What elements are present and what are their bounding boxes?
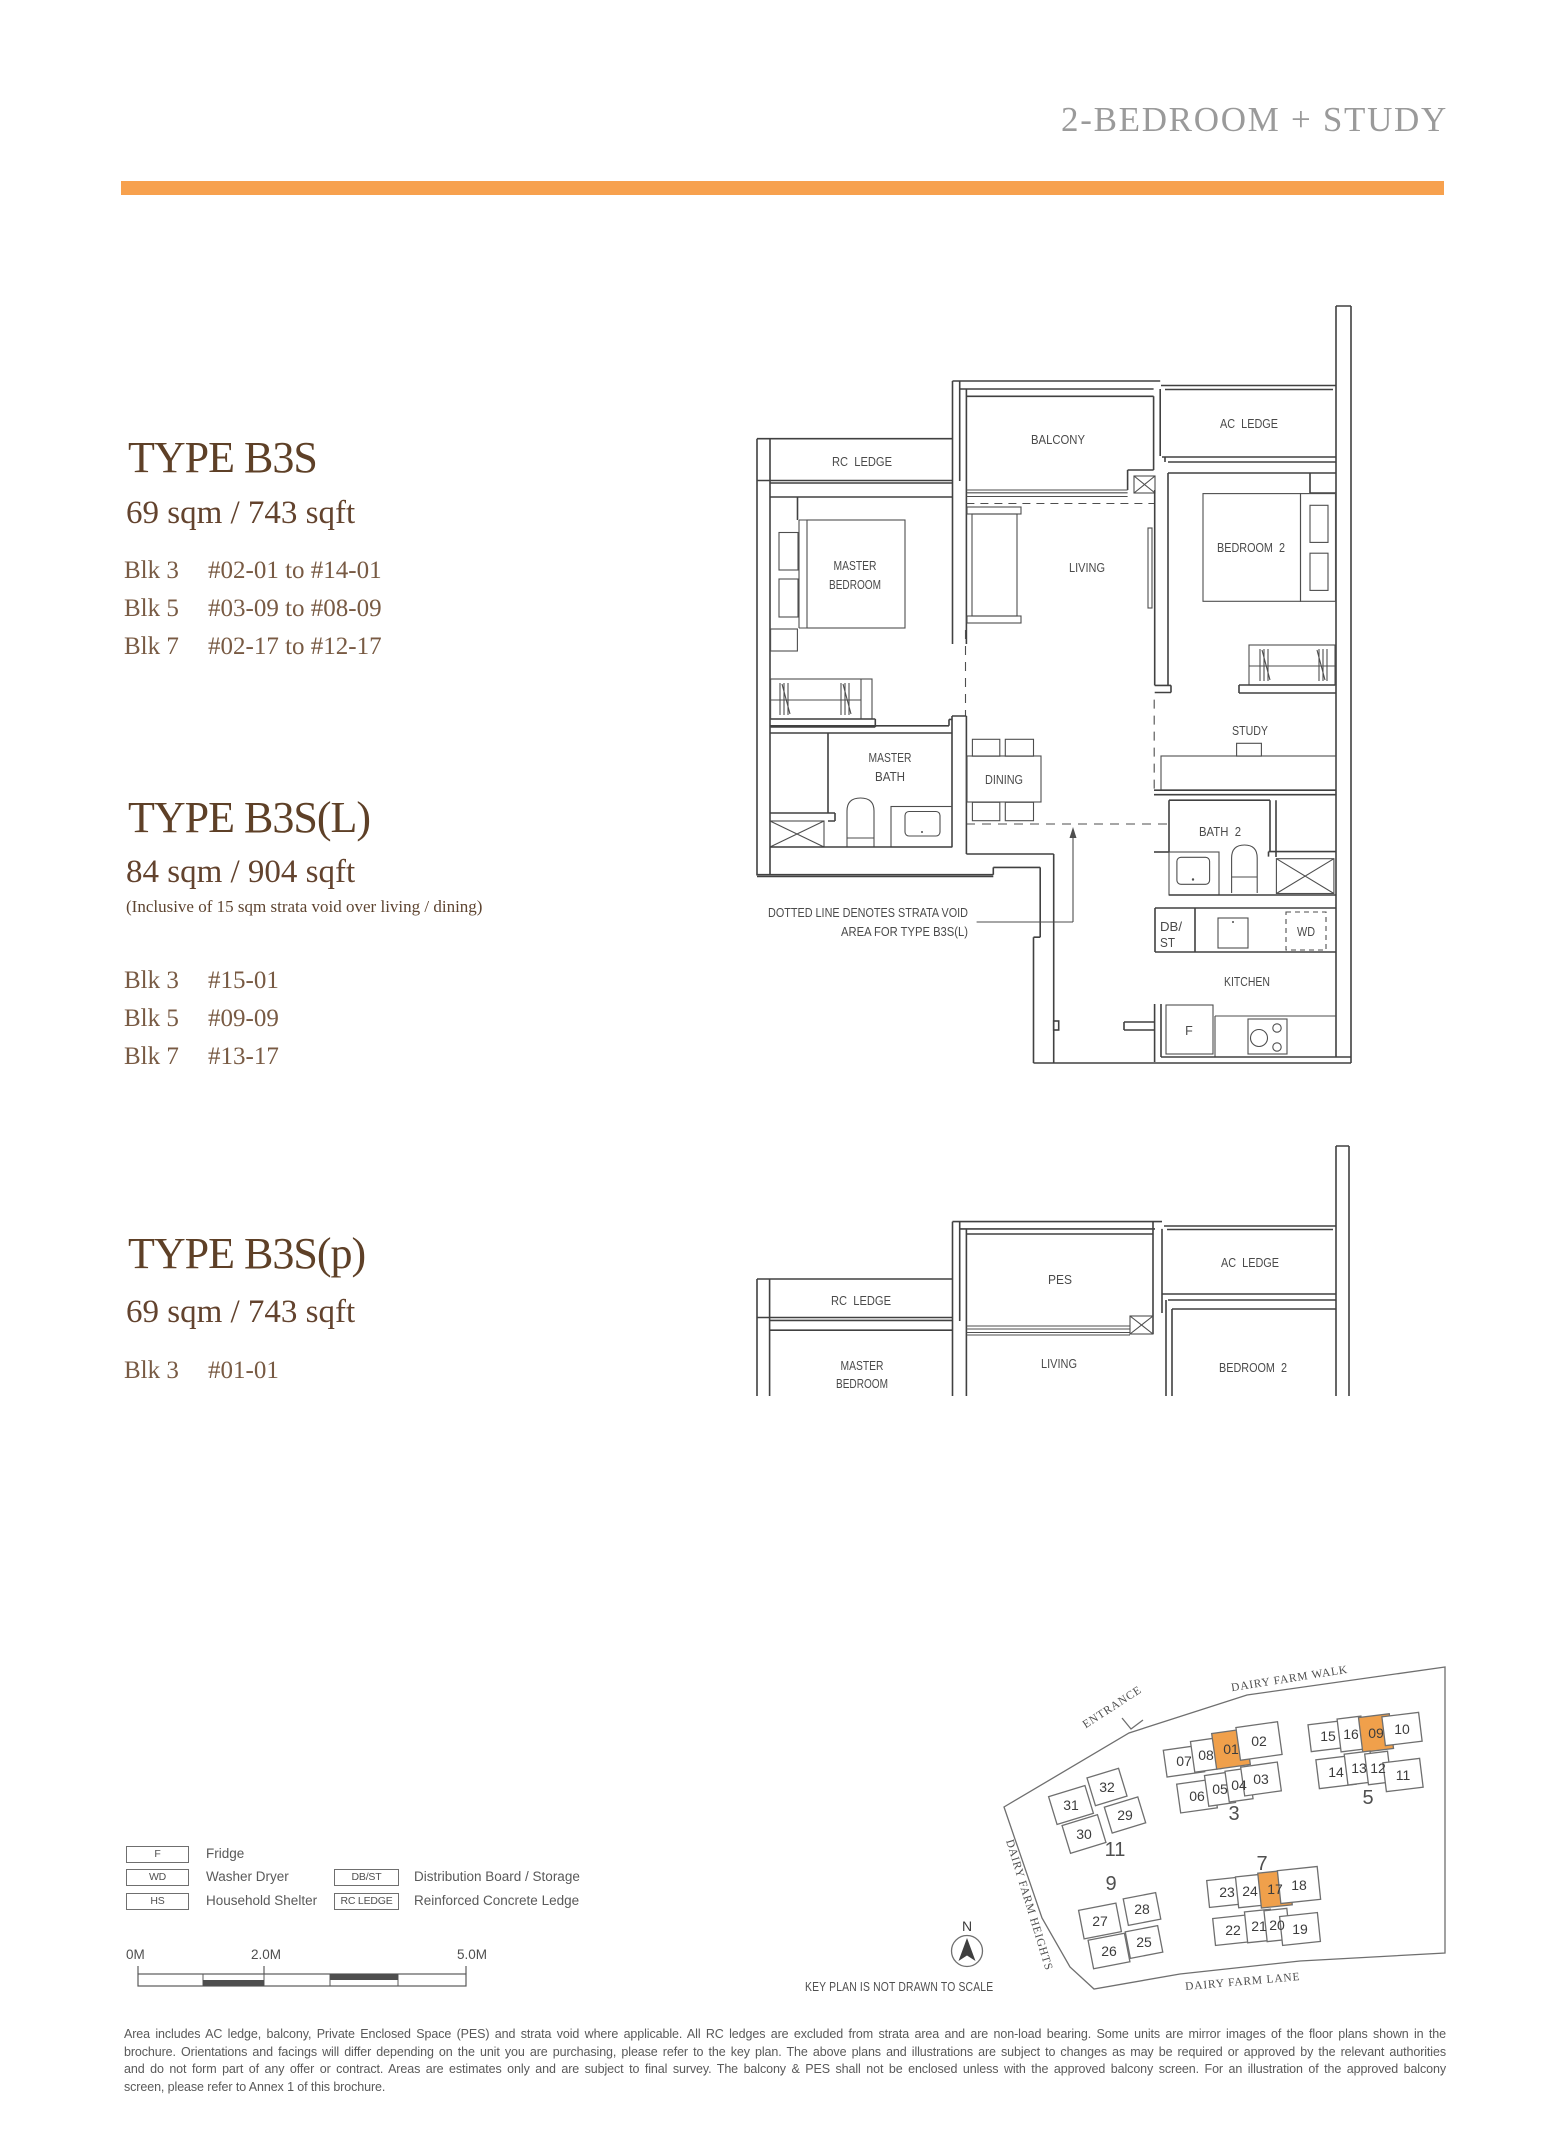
- svg-text:26: 26: [1101, 1943, 1117, 1959]
- svg-text:RC LEDGE: RC LEDGE: [832, 455, 892, 469]
- svg-text:LIVING: LIVING: [1069, 561, 1105, 575]
- svg-text:MASTER: MASTER: [841, 1359, 884, 1373]
- svg-text:BATH: BATH: [875, 770, 905, 784]
- svg-text:28: 28: [1134, 1901, 1150, 1917]
- svg-text:13: 13: [1351, 1760, 1367, 1776]
- svg-text:ST: ST: [1160, 936, 1175, 950]
- svg-text:LIVING: LIVING: [1041, 1357, 1077, 1371]
- svg-text:17: 17: [1267, 1881, 1283, 1897]
- svg-text:AC LEDGE: AC LEDGE: [1221, 1256, 1279, 1270]
- svg-text:02: 02: [1251, 1733, 1267, 1749]
- svg-text:DB/: DB/: [1160, 920, 1183, 934]
- svg-text:22: 22: [1225, 1922, 1241, 1938]
- svg-text:3: 3: [1228, 1803, 1239, 1825]
- svg-text:05: 05: [1212, 1781, 1228, 1797]
- svg-text:ENTRANCE: ENTRANCE: [1081, 1684, 1144, 1731]
- svg-text:0M: 0M: [126, 1947, 145, 1962]
- svg-text:30: 30: [1076, 1826, 1092, 1842]
- svg-text:16: 16: [1343, 1726, 1359, 1742]
- svg-text:STUDY: STUDY: [1232, 724, 1269, 738]
- svg-text:5.0M: 5.0M: [457, 1947, 487, 1962]
- svg-text:DOTTED LINE DENOTES STRATA VOI: DOTTED LINE DENOTES STRATA VOID: [768, 905, 968, 920]
- svg-text:11: 11: [1105, 1839, 1126, 1861]
- svg-text:DINING: DINING: [985, 773, 1023, 787]
- svg-text:BALCONY: BALCONY: [1031, 433, 1086, 447]
- svg-text:BEDROOM: BEDROOM: [829, 578, 881, 592]
- svg-text:BEDROOM 2: BEDROOM 2: [1219, 1361, 1287, 1375]
- svg-text:03: 03: [1253, 1771, 1269, 1787]
- svg-text:11: 11: [1396, 1767, 1411, 1783]
- svg-text:19: 19: [1292, 1921, 1308, 1937]
- svg-text:N: N: [962, 1918, 972, 1934]
- svg-text:MASTER: MASTER: [869, 751, 912, 765]
- svg-text:WD: WD: [1297, 925, 1315, 939]
- svg-text:23: 23: [1219, 1884, 1235, 1900]
- svg-text:01: 01: [1223, 1741, 1239, 1757]
- svg-text:9: 9: [1105, 1873, 1116, 1895]
- svg-text:06: 06: [1189, 1788, 1205, 1804]
- svg-text:5: 5: [1362, 1787, 1373, 1809]
- svg-text:AC LEDGE: AC LEDGE: [1220, 417, 1278, 431]
- svg-text:PES: PES: [1048, 1273, 1072, 1287]
- svg-text:DAIRY FARM HEIGHTS: DAIRY FARM HEIGHTS: [1003, 1838, 1054, 1972]
- svg-text:RC LEDGE: RC LEDGE: [831, 1294, 891, 1308]
- svg-text:10: 10: [1394, 1721, 1410, 1737]
- svg-text:24: 24: [1242, 1883, 1258, 1899]
- svg-text:BEDROOM: BEDROOM: [836, 1377, 888, 1391]
- svg-text:08: 08: [1198, 1747, 1214, 1763]
- svg-text:07: 07: [1176, 1753, 1192, 1769]
- svg-text:KITCHEN: KITCHEN: [1224, 975, 1270, 989]
- svg-text:2.0M: 2.0M: [251, 1947, 281, 1962]
- svg-text:20: 20: [1269, 1917, 1285, 1933]
- svg-text:F: F: [1185, 1024, 1193, 1038]
- svg-text:12: 12: [1370, 1760, 1386, 1776]
- svg-text:AREA FOR TYPE B3S(L): AREA FOR TYPE B3S(L): [841, 924, 968, 939]
- svg-text:15: 15: [1320, 1728, 1336, 1744]
- svg-text:MASTER: MASTER: [834, 559, 877, 573]
- svg-text:BEDROOM 2: BEDROOM 2: [1217, 541, 1285, 555]
- svg-text:31: 31: [1063, 1797, 1079, 1813]
- svg-text:04: 04: [1231, 1777, 1247, 1793]
- svg-text:DAIRY FARM LANE: DAIRY FARM LANE: [1185, 1971, 1301, 1993]
- svg-text:29: 29: [1117, 1807, 1133, 1823]
- svg-text:21: 21: [1251, 1918, 1267, 1934]
- svg-text:14: 14: [1328, 1764, 1344, 1780]
- svg-text:7: 7: [1256, 1853, 1267, 1875]
- svg-text:BATH 2: BATH 2: [1199, 825, 1241, 839]
- svg-text:18: 18: [1291, 1877, 1307, 1893]
- svg-text:32: 32: [1099, 1779, 1115, 1795]
- svg-text:09: 09: [1368, 1725, 1384, 1741]
- svg-text:27: 27: [1092, 1913, 1108, 1929]
- svg-text:25: 25: [1136, 1934, 1152, 1950]
